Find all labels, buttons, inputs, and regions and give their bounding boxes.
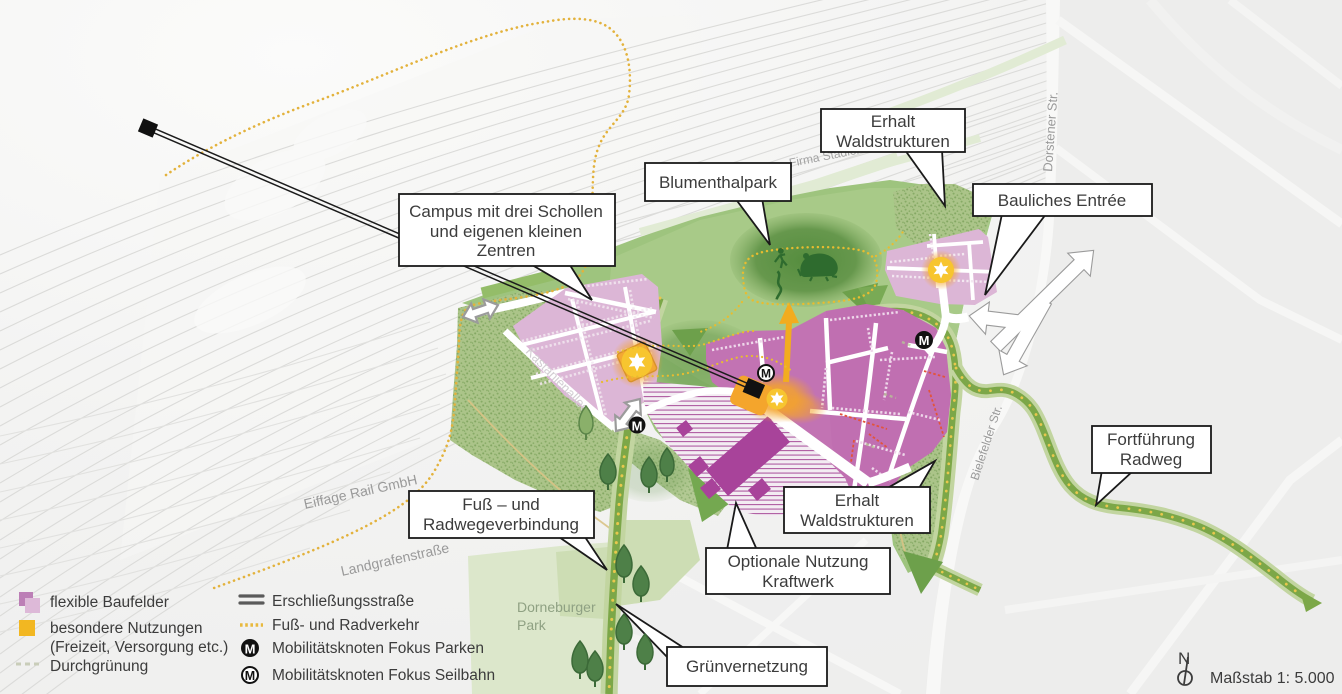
svg-text:Waldstrukturen: Waldstrukturen bbox=[836, 132, 950, 151]
svg-text:Blumenthalpark: Blumenthalpark bbox=[659, 173, 778, 192]
svg-text:M: M bbox=[761, 367, 771, 381]
svg-text:Waldstrukturen: Waldstrukturen bbox=[800, 511, 914, 530]
svg-text:M: M bbox=[245, 669, 255, 683]
svg-text:Erhalt: Erhalt bbox=[835, 491, 880, 510]
svg-text:Optionale Nutzung: Optionale Nutzung bbox=[728, 552, 869, 571]
svg-text:und eigenen kleinen: und eigenen kleinen bbox=[430, 222, 582, 241]
svg-text:M: M bbox=[245, 642, 256, 657]
svg-text:Mobilitätsknoten Fokus Seilbah: Mobilitätsknoten Fokus Seilbahn bbox=[272, 667, 495, 684]
svg-text:Dorneburger: Dorneburger bbox=[517, 599, 596, 615]
svg-text:Mobilitätsknoten Fokus Parken: Mobilitätsknoten Fokus Parken bbox=[272, 640, 484, 657]
svg-text:Park: Park bbox=[517, 617, 547, 633]
svg-text:Fuß- und Radverkehr: Fuß- und Radverkehr bbox=[272, 617, 419, 634]
svg-text:Fuß – und: Fuß – und bbox=[462, 495, 540, 514]
svg-text:flexible Baufelder: flexible Baufelder bbox=[50, 594, 169, 611]
svg-text:Campus mit drei Schollen: Campus mit drei Schollen bbox=[409, 202, 603, 221]
svg-text:Radweg: Radweg bbox=[1120, 450, 1182, 469]
svg-text:Erschließungsstraße: Erschließungsstraße bbox=[272, 593, 414, 610]
svg-text:besondere Nutzungen: besondere Nutzungen bbox=[50, 620, 203, 637]
svg-text:Maßstab 1: 5.000: Maßstab 1: 5.000 bbox=[1210, 670, 1335, 687]
svg-text:Bauliches Entrée: Bauliches Entrée bbox=[998, 191, 1127, 210]
svg-text:Radwegeverbindung: Radwegeverbindung bbox=[423, 515, 579, 534]
svg-text:Grünvernetzung: Grünvernetzung bbox=[686, 657, 808, 676]
svg-text:Erhalt: Erhalt bbox=[871, 112, 916, 131]
svg-text:(Freizeit, Versorgung etc.): (Freizeit, Versorgung etc.) bbox=[50, 639, 228, 656]
svg-text:Zentren: Zentren bbox=[477, 241, 536, 260]
svg-text:Fortführung: Fortführung bbox=[1107, 430, 1195, 449]
svg-text:Kraftwerk: Kraftwerk bbox=[762, 572, 834, 591]
svg-text:M: M bbox=[632, 419, 643, 434]
svg-text:Durchgrünung: Durchgrünung bbox=[50, 658, 148, 675]
svg-text:M: M bbox=[919, 333, 930, 348]
